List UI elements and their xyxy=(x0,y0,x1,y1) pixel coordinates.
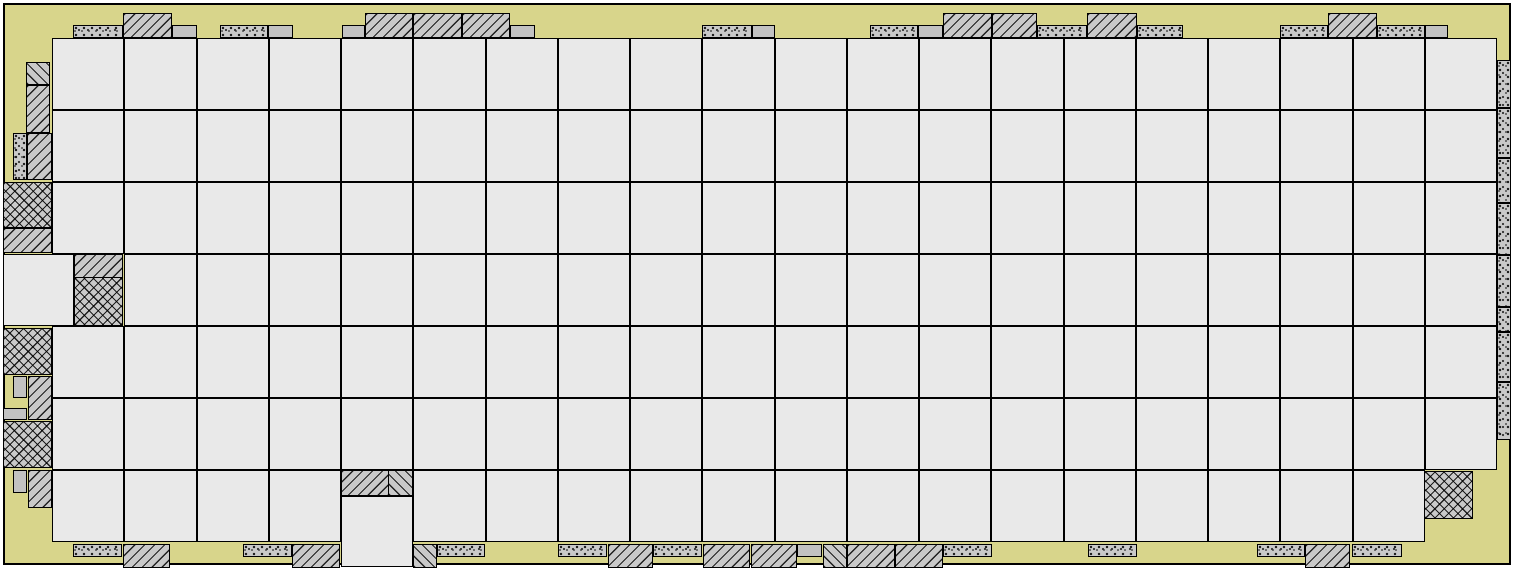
grid-tile xyxy=(630,110,702,182)
grid-tile xyxy=(558,398,630,470)
io-pad-left-hatch xyxy=(28,470,52,508)
grid-tile xyxy=(919,398,991,470)
grid-tile-displaced xyxy=(341,496,413,567)
macro-block-hatch xyxy=(341,470,389,496)
io-pad-right-stipple xyxy=(1497,307,1511,332)
grid-tile xyxy=(919,254,991,326)
grid-tile xyxy=(341,254,413,326)
grid-tile xyxy=(630,470,702,542)
io-pad-top-hatch xyxy=(1328,13,1377,38)
io-pad-top-plain xyxy=(752,25,775,38)
grid-tile xyxy=(1136,38,1208,110)
grid-tile xyxy=(702,38,774,110)
grid-tile xyxy=(1353,326,1425,398)
grid-tile xyxy=(775,470,847,542)
io-pad-bottom-plain xyxy=(797,544,822,557)
grid-tile xyxy=(919,326,991,398)
io-pad-left-cross xyxy=(3,421,52,468)
grid-tile xyxy=(775,38,847,110)
io-pad-top-stipple xyxy=(1137,25,1183,38)
grid-tile xyxy=(558,326,630,398)
grid-tile xyxy=(847,398,919,470)
io-pad-bottom-hatch xyxy=(895,544,943,568)
grid-tile xyxy=(991,182,1063,254)
io-pad-bottom-hatch xyxy=(847,544,895,568)
grid-tile xyxy=(413,182,485,254)
grid-tile xyxy=(847,182,919,254)
grid-tile xyxy=(124,470,196,542)
grid-tile xyxy=(1280,38,1352,110)
grid-tile xyxy=(1425,398,1497,470)
io-pad-left-cross xyxy=(3,328,52,375)
grid-tile xyxy=(341,110,413,182)
grid-tile xyxy=(269,182,341,254)
grid-tile xyxy=(1280,326,1352,398)
io-pad-right-stipple xyxy=(1497,203,1511,255)
grid-tile xyxy=(341,182,413,254)
grid-tile xyxy=(1208,326,1280,398)
grid-tile xyxy=(1353,182,1425,254)
grid-tile xyxy=(558,110,630,182)
grid-tile xyxy=(1425,182,1497,254)
grid-tile xyxy=(269,470,341,542)
grid-tile xyxy=(197,398,269,470)
grid-tile xyxy=(991,254,1063,326)
grid-tile xyxy=(847,254,919,326)
grid-tile xyxy=(702,398,774,470)
grid-tile xyxy=(486,182,558,254)
grid-tile xyxy=(1064,254,1136,326)
io-pad-top-hatch xyxy=(365,13,413,38)
grid-tile-displaced xyxy=(3,254,74,326)
io-pad-bottom-hatch xyxy=(292,544,340,568)
grid-tile xyxy=(847,326,919,398)
floorplan-canvas xyxy=(0,0,1519,570)
io-pad-bottom-hatch xyxy=(1305,544,1350,568)
grid-tile xyxy=(486,38,558,110)
grid-tile xyxy=(413,38,485,110)
grid-tile xyxy=(1208,254,1280,326)
io-pad-bottom-bhatch xyxy=(823,544,847,568)
grid-tile xyxy=(630,326,702,398)
grid-tile xyxy=(52,182,124,254)
grid-tile xyxy=(991,398,1063,470)
io-pad-bottom-hatch xyxy=(123,544,170,568)
io-pad-right-stipple xyxy=(1497,332,1511,382)
grid-tile xyxy=(269,38,341,110)
io-pad-top-stipple xyxy=(1377,25,1425,38)
grid-tile xyxy=(775,398,847,470)
grid-tile xyxy=(1136,326,1208,398)
io-pad-bottom-hatch xyxy=(703,544,750,568)
io-pad-top-hatch xyxy=(413,13,462,38)
grid-tile xyxy=(702,182,774,254)
io-pad-bottom-bhatch xyxy=(413,544,437,568)
macro-block-cross xyxy=(74,277,123,326)
grid-tile xyxy=(1425,254,1497,326)
grid-tile xyxy=(413,110,485,182)
grid-tile xyxy=(919,470,991,542)
grid-tile xyxy=(1208,38,1280,110)
grid-tile xyxy=(1136,398,1208,470)
grid-tile xyxy=(124,110,196,182)
grid-tile xyxy=(124,326,196,398)
grid-tile xyxy=(702,326,774,398)
grid-tile xyxy=(630,38,702,110)
grid-tile xyxy=(52,326,124,398)
grid-tile xyxy=(124,38,196,110)
io-pad-left-hatch xyxy=(3,228,52,253)
io-pad-left-plain xyxy=(3,408,27,420)
grid-tile xyxy=(991,470,1063,542)
io-pad-top-hatch xyxy=(943,13,992,38)
io-pad-top-plain xyxy=(172,25,197,38)
grid-tile xyxy=(197,38,269,110)
grid-tile xyxy=(919,182,991,254)
grid-tile xyxy=(1280,254,1352,326)
grid-tile xyxy=(1353,398,1425,470)
grid-tile xyxy=(702,470,774,542)
grid-tile xyxy=(413,254,485,326)
grid-tile xyxy=(486,398,558,470)
io-pad-bottom-stipple xyxy=(437,544,485,557)
io-pad-top-stipple xyxy=(870,25,918,38)
io-pad-bottom-stipple xyxy=(1088,544,1137,557)
grid-tile xyxy=(1064,110,1136,182)
grid-tile xyxy=(1280,110,1352,182)
grid-tile xyxy=(630,182,702,254)
grid-tile xyxy=(1136,110,1208,182)
grid-tile xyxy=(847,110,919,182)
grid-tile xyxy=(269,326,341,398)
grid-tile xyxy=(486,326,558,398)
grid-tile xyxy=(197,110,269,182)
grid-tile xyxy=(197,326,269,398)
io-pad-top-hatch xyxy=(462,13,510,38)
io-pad-top-stipple xyxy=(220,25,268,38)
io-pad-top-stipple xyxy=(702,25,752,38)
io-pad-bottom-hatch xyxy=(608,544,653,568)
grid-tile xyxy=(52,470,124,542)
io-pad-left-bhatch xyxy=(26,62,50,85)
grid-tile xyxy=(341,326,413,398)
grid-tile xyxy=(341,398,413,470)
grid-tile xyxy=(991,110,1063,182)
grid-tile xyxy=(558,254,630,326)
grid-tile xyxy=(341,38,413,110)
io-pad-bottom-stipple xyxy=(73,544,122,557)
grid-tile xyxy=(775,110,847,182)
grid-tile xyxy=(1136,470,1208,542)
macro-block-bhatch xyxy=(388,470,413,496)
io-pad-left-hatch xyxy=(27,133,52,180)
io-pad-bottom-stipple xyxy=(1257,544,1305,557)
grid-tile xyxy=(775,254,847,326)
grid-tile xyxy=(1208,110,1280,182)
io-pad-bottom-stipple xyxy=(558,544,607,557)
io-pad-bottom-stipple xyxy=(243,544,292,557)
grid-tile xyxy=(1136,182,1208,254)
grid-tile xyxy=(124,182,196,254)
grid-tile xyxy=(1064,470,1136,542)
io-pad-top-plain xyxy=(342,25,365,38)
grid-tile xyxy=(269,398,341,470)
io-pad-top-hatch xyxy=(1087,13,1137,38)
grid-tile xyxy=(1280,398,1352,470)
grid-tile xyxy=(630,254,702,326)
grid-tile xyxy=(269,110,341,182)
io-pad-bottom-stipple xyxy=(943,544,992,557)
grid-tile xyxy=(413,326,485,398)
grid-tile xyxy=(1353,38,1425,110)
macro-block-cross xyxy=(1424,471,1473,519)
grid-tile xyxy=(197,470,269,542)
grid-tile xyxy=(558,38,630,110)
grid-tile xyxy=(1064,38,1136,110)
grid-tile xyxy=(1425,38,1497,110)
grid-tile xyxy=(52,38,124,110)
grid-tile xyxy=(413,398,485,470)
grid-tile xyxy=(1353,470,1425,542)
io-pad-right-stipple xyxy=(1497,108,1511,158)
grid-tile xyxy=(775,326,847,398)
grid-tile xyxy=(197,254,269,326)
grid-tile xyxy=(1425,110,1497,182)
grid-tile xyxy=(991,38,1063,110)
grid-tile xyxy=(1425,326,1497,398)
io-pad-left-plain xyxy=(13,470,27,493)
grid-tile xyxy=(919,110,991,182)
io-pad-right-stipple xyxy=(1497,382,1511,440)
grid-tile xyxy=(1353,110,1425,182)
grid-tile xyxy=(775,182,847,254)
io-pad-left-cross xyxy=(3,182,52,228)
io-pad-top-hatch xyxy=(992,13,1037,38)
io-pad-top-plain xyxy=(918,25,943,38)
grid-tile xyxy=(1353,254,1425,326)
grid-tile xyxy=(52,110,124,182)
io-pad-bottom-hatch xyxy=(751,544,797,568)
grid-tile xyxy=(124,398,196,470)
io-pad-bottom-stipple xyxy=(1352,544,1402,557)
io-pad-right-stipple xyxy=(1497,158,1511,203)
grid-tile xyxy=(558,470,630,542)
grid-tile xyxy=(197,182,269,254)
io-pad-top-hatch xyxy=(123,13,172,38)
io-pad-left-stipple xyxy=(13,133,27,180)
grid-tile xyxy=(1280,182,1352,254)
grid-tile xyxy=(702,110,774,182)
macro-block-hatch xyxy=(74,254,123,278)
grid-tile xyxy=(1064,398,1136,470)
grid-tile xyxy=(1208,470,1280,542)
io-pad-bottom-stipple xyxy=(653,544,702,557)
grid-tile xyxy=(1064,182,1136,254)
grid-tile xyxy=(52,398,124,470)
grid-tile xyxy=(630,398,702,470)
io-pad-top-stipple xyxy=(73,25,123,38)
grid-tile xyxy=(702,254,774,326)
io-pad-right-stipple xyxy=(1497,60,1511,108)
grid-tile xyxy=(1064,326,1136,398)
grid-tile xyxy=(919,38,991,110)
grid-tile xyxy=(124,254,196,326)
grid-tile xyxy=(1280,470,1352,542)
io-pad-left-plain xyxy=(13,376,27,398)
grid-tile xyxy=(1208,182,1280,254)
grid-tile xyxy=(486,254,558,326)
grid-tile xyxy=(1208,398,1280,470)
grid-tile xyxy=(1136,254,1208,326)
io-pad-top-plain xyxy=(510,25,535,38)
grid-tile xyxy=(847,470,919,542)
grid-tile xyxy=(486,470,558,542)
io-pad-top-stipple xyxy=(1280,25,1328,38)
io-pad-top-stipple xyxy=(1037,25,1087,38)
io-pad-left-hatch xyxy=(26,85,50,133)
grid-tile xyxy=(269,254,341,326)
io-pad-top-plain xyxy=(1425,25,1448,38)
grid-tile xyxy=(991,326,1063,398)
io-pad-top-plain xyxy=(268,25,293,38)
grid-tile xyxy=(486,110,558,182)
io-pad-right-stipple xyxy=(1497,255,1511,307)
io-pad-left-hatch xyxy=(28,376,52,420)
grid-tile xyxy=(847,38,919,110)
grid-tile xyxy=(558,182,630,254)
grid-tile xyxy=(413,470,485,542)
